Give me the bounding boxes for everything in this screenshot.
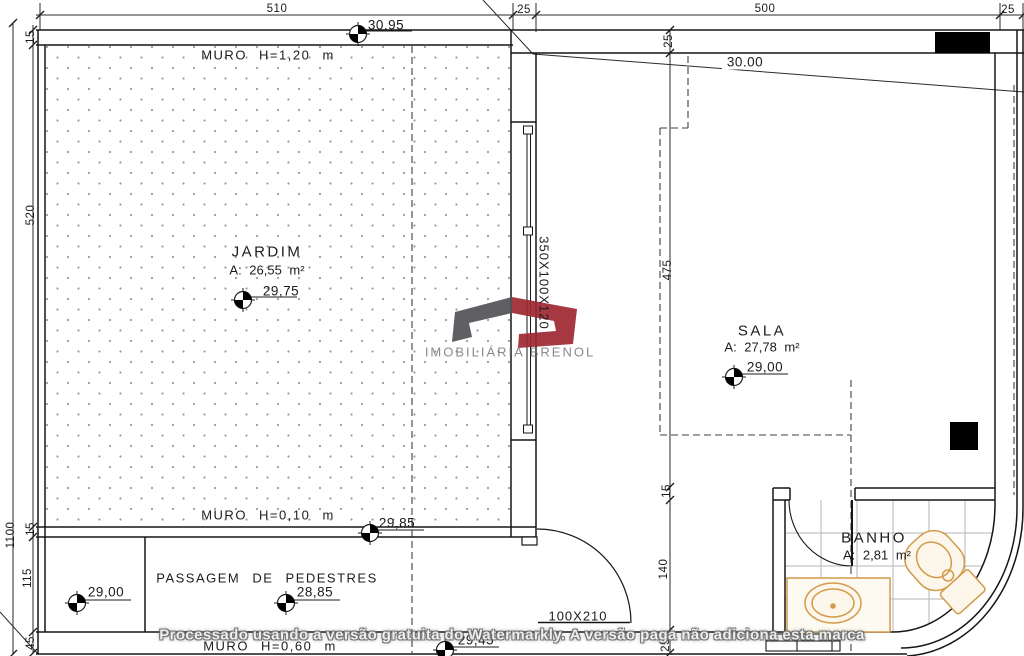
room-name-banho: BANHO: [841, 530, 907, 547]
dim-right-25-top: 25: [663, 34, 675, 48]
window-icon: [524, 126, 533, 433]
window-size-label: 350X100X120: [537, 236, 552, 329]
dim-right-15: 15: [661, 484, 673, 498]
dim-left-115: 115: [22, 568, 34, 588]
elevation-jardim: 29,75: [263, 284, 299, 299]
elevation-sala: 29,00: [747, 360, 783, 375]
elevation-muro: 29,85: [379, 516, 415, 531]
room-area-sala: A: 27,78 m²: [724, 340, 799, 355]
column-top: [935, 32, 990, 53]
room-area-banho: A: 2,81 m²: [843, 548, 911, 563]
elevation-passage-left: 29,00: [88, 585, 124, 600]
dim-right-140: 140: [658, 559, 670, 580]
elevation-street: 30,95: [368, 18, 404, 33]
dim-left-1100: 1100: [5, 522, 17, 549]
wall-label-top: MURO H=1,20 m: [201, 48, 335, 63]
door-size-label: 100X210: [548, 609, 607, 624]
dim-left-520: 520: [25, 205, 37, 226]
sink-icon: [787, 578, 890, 632]
imobiliaria-brenol-logo-text: IMOBILIÁRIA BRENOL: [425, 345, 595, 360]
column-sala: [950, 422, 978, 450]
dim-left-15-top: 15: [25, 30, 37, 44]
dim-left-45: 45: [25, 636, 37, 650]
dim-top-500: 500: [755, 3, 776, 15]
elevation-passage-right: 28,85: [297, 585, 333, 600]
elevation-terrain: 30.00: [722, 55, 768, 70]
room-area-jardim: A: 26,55 m²: [229, 263, 304, 278]
floor-plan: 510 25 500 25 15 520 15 115 45 1100 25 4…: [0, 0, 1024, 656]
dim-left-15-mid: 15: [25, 522, 37, 536]
room-name-jardim: JARDIM: [232, 244, 303, 261]
dim-right-475: 475: [662, 260, 674, 281]
dim-top-510: 510: [267, 3, 288, 15]
toilet-icon: [897, 522, 992, 619]
wall-label-mid: MURO H=0,10 m: [201, 508, 335, 523]
passage-label: PASSAGEM DE PEDESTRES: [156, 571, 378, 586]
dim-top-25-right: 25: [1001, 4, 1015, 16]
watermark-text: Processado usando a versão gratuita do W…: [159, 627, 865, 644]
room-name-sala: SALA: [738, 323, 786, 340]
dim-top-25-left: 25: [517, 4, 531, 16]
